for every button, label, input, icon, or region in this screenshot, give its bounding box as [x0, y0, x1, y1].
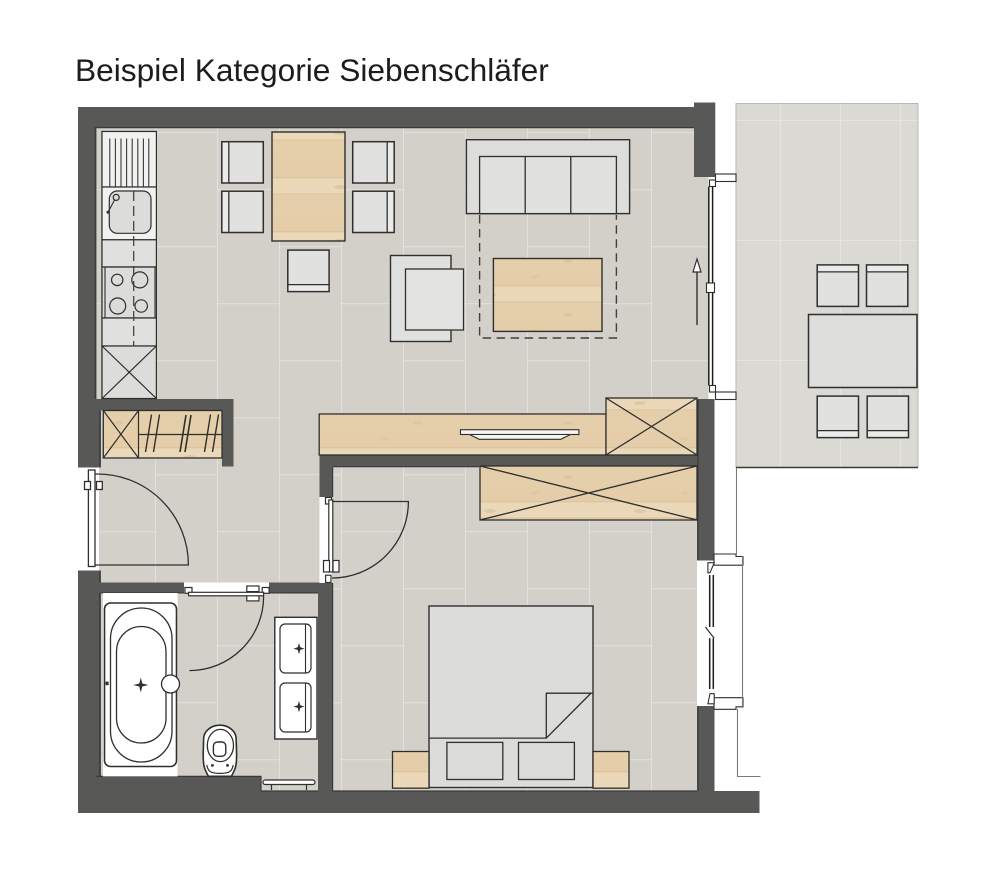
svg-text:Beispiel Kategorie Siebenschlä: Beispiel Kategorie Siebenschläfer	[75, 52, 549, 88]
